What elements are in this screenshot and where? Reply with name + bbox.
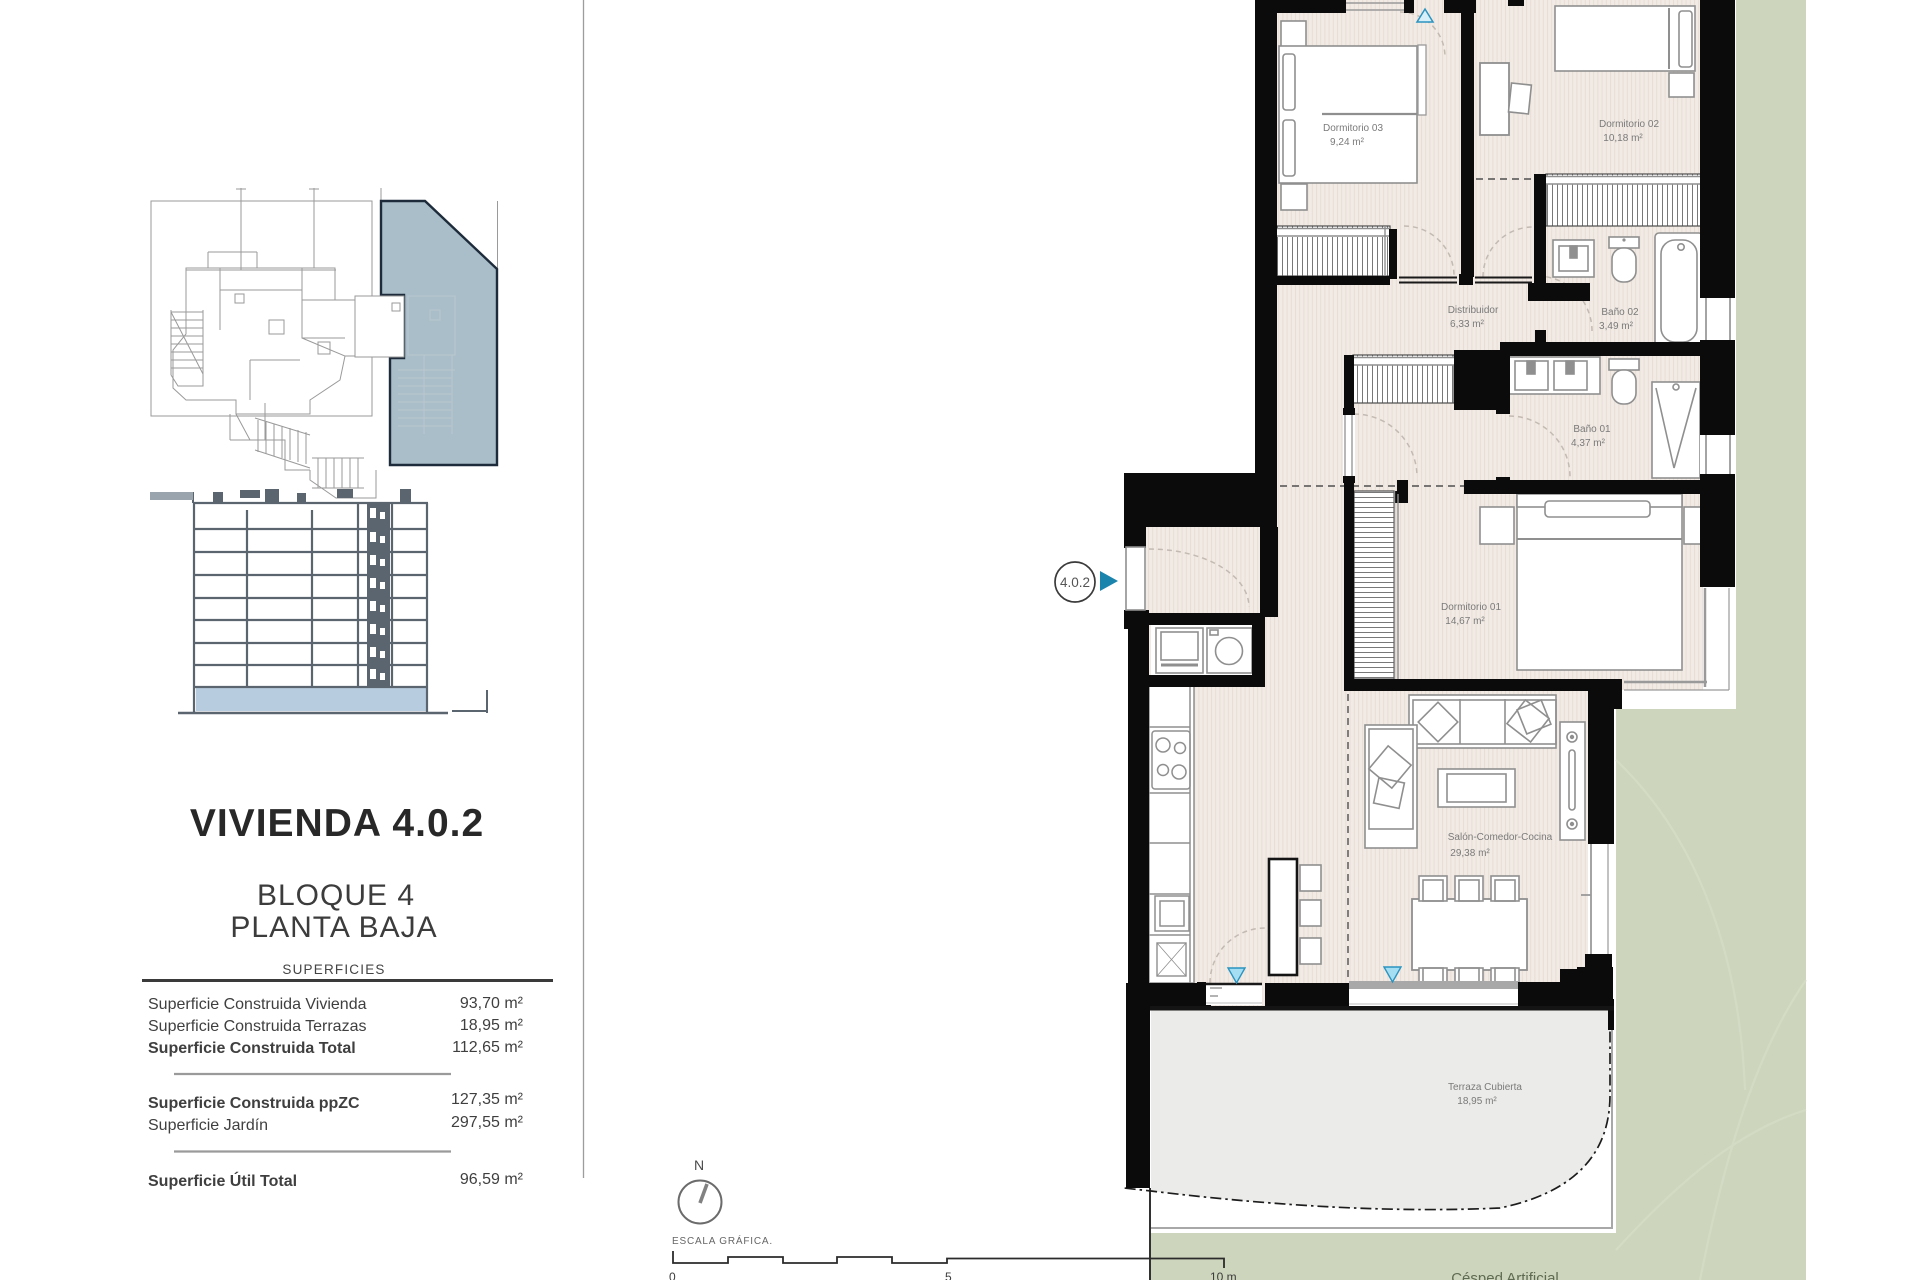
svg-text:9,24 m²: 9,24 m² bbox=[1330, 137, 1365, 148]
svg-text:18,95 m²: 18,95 m² bbox=[1457, 1096, 1497, 1107]
svg-text:Césped Artificial: Césped Artificial bbox=[1451, 1270, 1559, 1280]
svg-text:10,18 m²: 10,18 m² bbox=[1603, 133, 1643, 144]
svg-text:6,33 m²: 6,33 m² bbox=[1450, 319, 1485, 330]
svg-text:10 m: 10 m bbox=[1210, 1270, 1237, 1280]
svg-text:Dormitorio 03: Dormitorio 03 bbox=[1323, 123, 1383, 134]
svg-text:Superficie Construida Terrazas: Superficie Construida Terrazas bbox=[148, 1018, 366, 1035]
svg-text:3,49 m²: 3,49 m² bbox=[1599, 321, 1634, 332]
svg-text:112,65 m²: 112,65 m² bbox=[452, 1039, 524, 1056]
svg-text:96,59 m²: 96,59 m² bbox=[460, 1171, 524, 1188]
svg-text:297,55 m²: 297,55 m² bbox=[451, 1114, 524, 1131]
svg-text:N: N bbox=[694, 1157, 704, 1173]
svg-text:4,37 m²: 4,37 m² bbox=[1571, 438, 1606, 449]
svg-text:Superficie Útil Total: Superficie Útil Total bbox=[148, 1171, 297, 1190]
svg-text:Superficie Construida ppZC: Superficie Construida ppZC bbox=[148, 1095, 360, 1112]
svg-text:Superficie Construida Vivienda: Superficie Construida Vivienda bbox=[148, 996, 367, 1013]
svg-text:14,67 m²: 14,67 m² bbox=[1445, 616, 1485, 627]
svg-text:18,95 m²: 18,95 m² bbox=[460, 1017, 524, 1034]
svg-text:PLANTA BAJA: PLANTA BAJA bbox=[230, 911, 437, 944]
svg-text:Superficie Jardín: Superficie Jardín bbox=[148, 1117, 268, 1134]
svg-text:SUPERFICIES: SUPERFICIES bbox=[282, 962, 385, 977]
svg-text:127,35 m²: 127,35 m² bbox=[451, 1091, 524, 1108]
svg-text:Baño 01: Baño 01 bbox=[1573, 424, 1611, 435]
svg-text:Dormitorio 01: Dormitorio 01 bbox=[1441, 602, 1501, 613]
svg-text:VIVIENDA 4.0.2: VIVIENDA 4.0.2 bbox=[190, 802, 484, 845]
svg-text:29,38 m²: 29,38 m² bbox=[1450, 848, 1490, 859]
svg-text:Distribuidor: Distribuidor bbox=[1448, 305, 1499, 316]
svg-text:Salón-Comedor-Cocina: Salón-Comedor-Cocina bbox=[1448, 832, 1553, 843]
svg-text:5: 5 bbox=[945, 1270, 952, 1280]
svg-text:BLOQUE 4: BLOQUE 4 bbox=[257, 879, 415, 912]
svg-text:Baño 02: Baño 02 bbox=[1601, 307, 1639, 318]
svg-text:Superficie Construida Total: Superficie Construida Total bbox=[148, 1040, 356, 1057]
svg-text:ESCALA GRÁFICA.: ESCALA GRÁFICA. bbox=[672, 1234, 773, 1247]
svg-text:0: 0 bbox=[669, 1270, 676, 1280]
svg-text:93,70 m²: 93,70 m² bbox=[460, 995, 524, 1012]
svg-text:Terraza Cubierta: Terraza Cubierta bbox=[1448, 1082, 1522, 1093]
svg-text:4.0.2: 4.0.2 bbox=[1060, 575, 1090, 590]
svg-text:Dormitorio 02: Dormitorio 02 bbox=[1599, 119, 1659, 130]
